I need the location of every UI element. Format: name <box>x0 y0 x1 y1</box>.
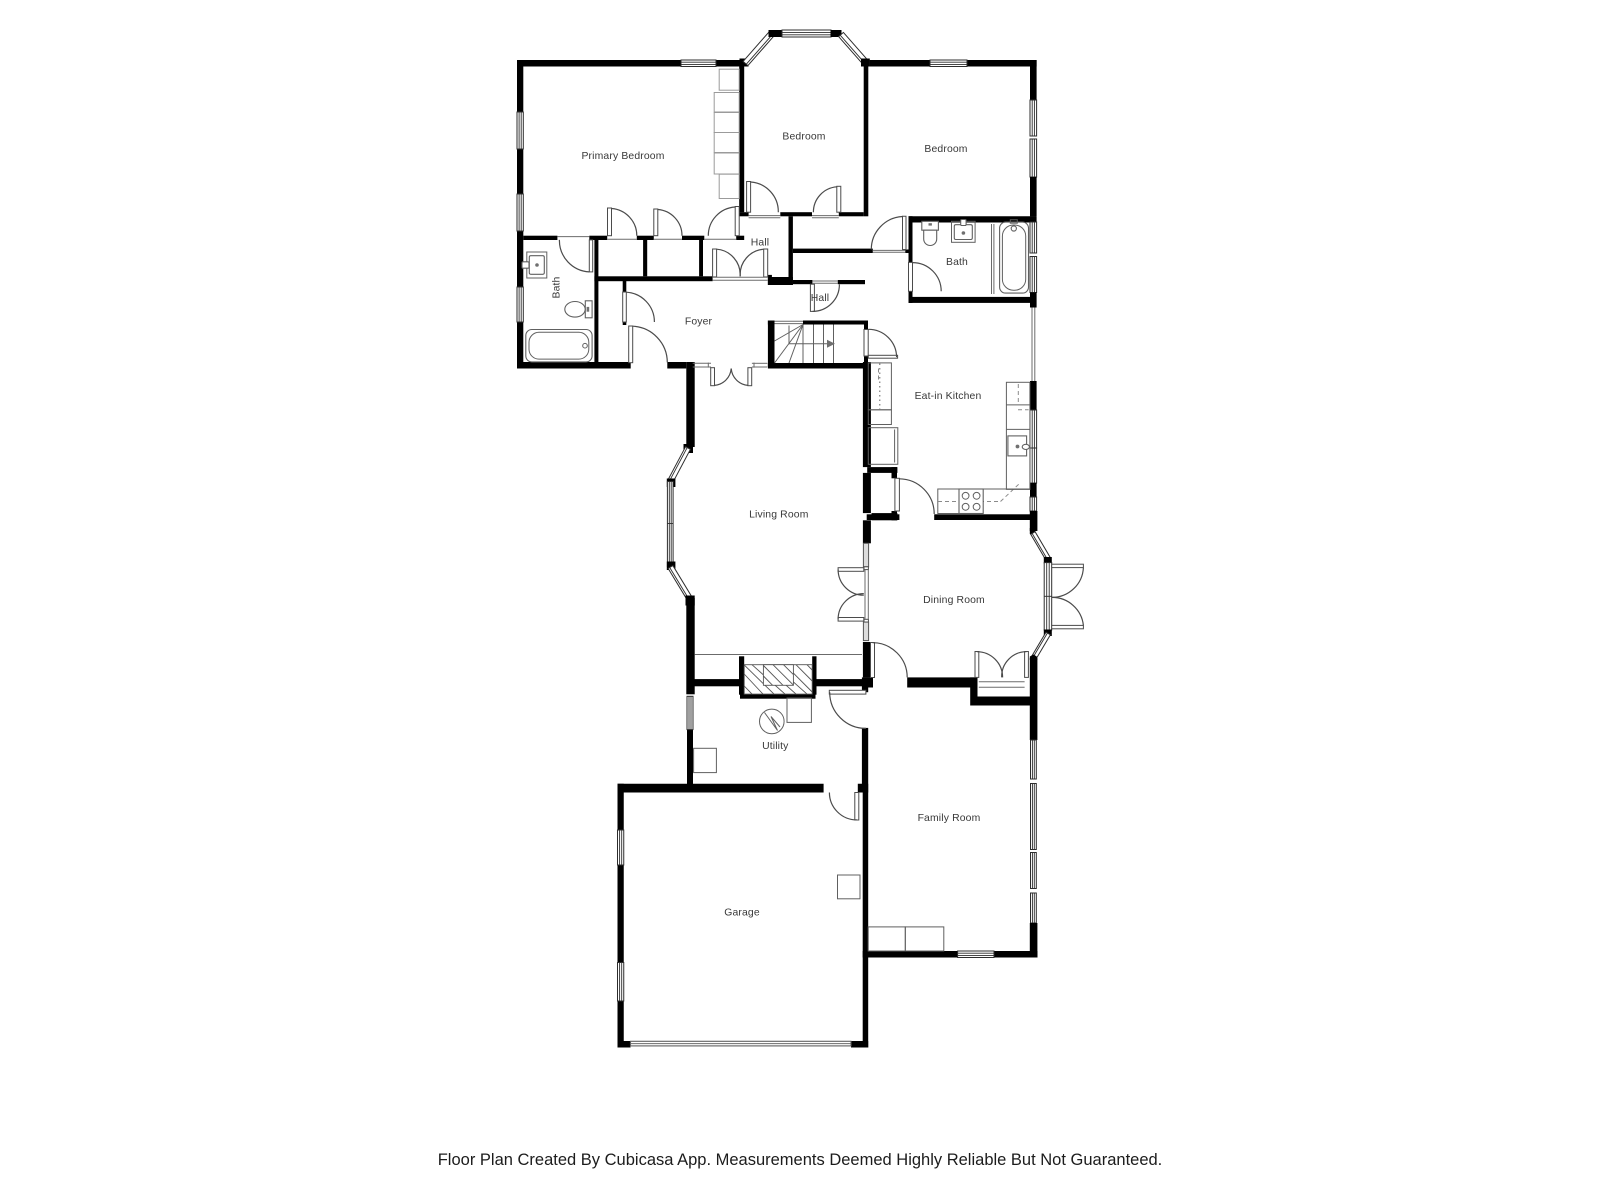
svg-text:Bath: Bath <box>946 257 968 268</box>
svg-text:Garage: Garage <box>724 908 760 919</box>
svg-text:Bedroom: Bedroom <box>924 144 967 155</box>
svg-text:Primary Bedroom: Primary Bedroom <box>581 151 664 162</box>
svg-text:Hall: Hall <box>811 293 830 304</box>
svg-text:Dining Room: Dining Room <box>923 595 985 606</box>
svg-text:Floor Plan Created By Cubicasa: Floor Plan Created By Cubicasa App. Meas… <box>438 1151 1163 1169</box>
svg-text:Foyer: Foyer <box>685 317 713 328</box>
svg-text:Eat-in Kitchen: Eat-in Kitchen <box>915 391 982 402</box>
svg-text:Family Room: Family Room <box>918 813 981 824</box>
svg-text:Hall: Hall <box>751 238 770 249</box>
svg-text:Utility: Utility <box>762 741 789 752</box>
svg-text:Bath: Bath <box>552 276 563 298</box>
svg-text:Bedroom: Bedroom <box>782 132 825 143</box>
svg-text:Living Room: Living Room <box>749 510 808 521</box>
